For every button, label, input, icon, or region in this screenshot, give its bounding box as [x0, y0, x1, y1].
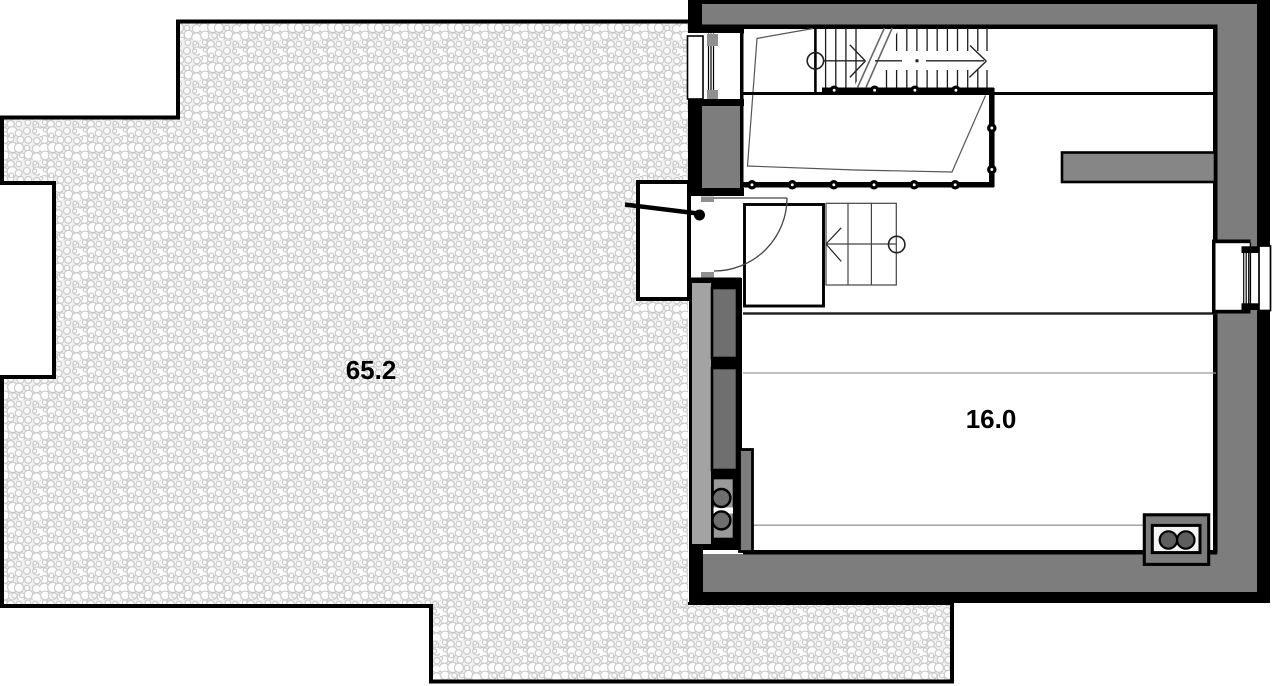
svg-text:16.0: 16.0	[966, 404, 1017, 434]
svg-text:65.2: 65.2	[346, 355, 397, 385]
